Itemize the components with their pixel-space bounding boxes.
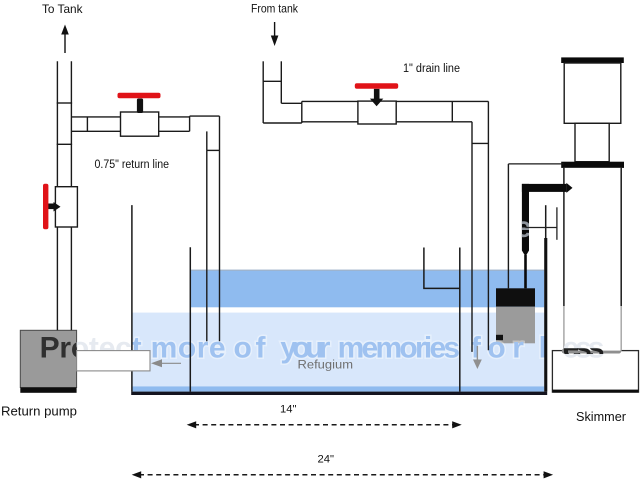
svg-text:From tank: From tank (251, 2, 299, 16)
svg-text:Refugium: Refugium (298, 360, 354, 372)
svg-text:Return pump: Return pump (1, 405, 77, 419)
svg-text:0.75" return line: 0.75" return line (95, 159, 170, 171)
svg-text:of: of (234, 332, 267, 365)
svg-text:Skimmer: Skimmer (576, 410, 626, 424)
svg-text:memories: memories (338, 332, 461, 365)
svg-text:14": 14" (280, 404, 297, 416)
svg-text:ess: ess (563, 332, 605, 365)
svg-text:1" drain line: 1" drain line (403, 63, 460, 75)
svg-text:To Tank: To Tank (42, 2, 83, 16)
svg-text:24": 24" (318, 454, 335, 466)
